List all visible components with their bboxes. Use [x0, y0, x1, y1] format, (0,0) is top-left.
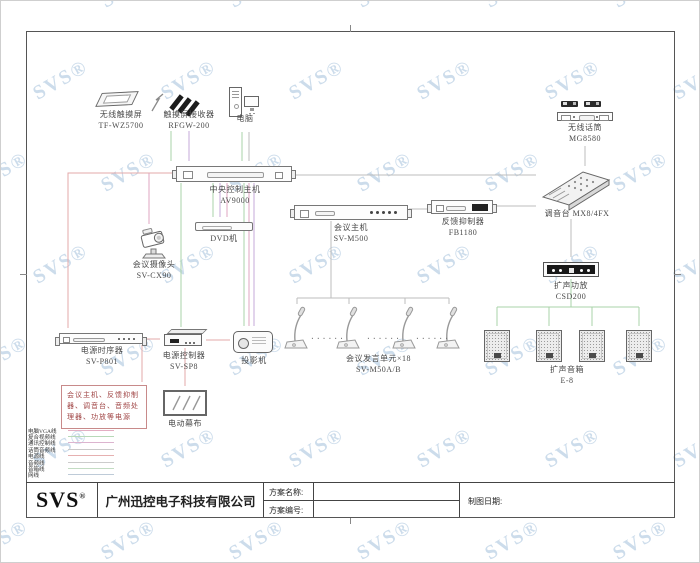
- panel-detail: [300, 210, 309, 218]
- conference-host-label: 会议主机 SV-M500: [315, 223, 387, 245]
- svs-logo: SVS®: [36, 487, 86, 513]
- conference-unit-icon: [436, 305, 462, 351]
- speaker-icon: [626, 330, 652, 362]
- dvd-player-icon: [195, 222, 253, 231]
- ellipsis-dots: ......: [310, 332, 345, 341]
- ellipsis-dots: ......: [366, 332, 401, 341]
- legend-line-swatch: [68, 455, 114, 456]
- projector-icon: [233, 331, 273, 353]
- central-controller-icon: [176, 166, 292, 182]
- divider: [459, 483, 460, 517]
- central-controller-label: 中央控制主机 AV9000: [199, 185, 271, 207]
- computer-monitor-icon: [244, 96, 259, 107]
- watermark-text: SVS®: [97, 0, 160, 13]
- watermark-text: SVS®: [0, 516, 32, 563]
- computer-tower-icon: [229, 87, 242, 117]
- handheld-mic-icon: [561, 101, 578, 107]
- knobs: [185, 342, 187, 344]
- legend-line-swatch: [68, 449, 114, 450]
- speaker-icon: [484, 330, 510, 362]
- panel-detail: [596, 116, 598, 118]
- registered-mark: ®: [79, 492, 86, 501]
- watermark-text: SVS®: [97, 516, 160, 563]
- display: [170, 339, 179, 343]
- knobs: [580, 269, 583, 272]
- panel-detail: [275, 172, 283, 179]
- top-center-tick: [350, 25, 351, 32]
- legend-line-swatch: [68, 430, 114, 431]
- motor-screen-icon: [163, 390, 207, 416]
- panel-detail: [73, 338, 105, 342]
- watermark-text: SVS®: [481, 516, 544, 563]
- legend-item: 网线: [28, 472, 114, 478]
- display: [569, 268, 574, 273]
- screen-lines: [165, 392, 205, 414]
- speaker-icon: [579, 330, 605, 362]
- touchscreen-label: 无线触摸屏 TF-WZ5700: [91, 110, 151, 132]
- projector-label: 投影机: [231, 356, 277, 367]
- watermark-text: SVS®: [481, 0, 544, 13]
- panel-detail: [446, 206, 466, 211]
- mixer-icon: [541, 169, 611, 211]
- conference-units-label: 会议发言单元×18 SV-M50A/B: [331, 354, 426, 376]
- watermark-text: SVS®: [225, 516, 288, 563]
- power-controller-label: 电源控制器 SV-SP8: [149, 351, 219, 373]
- amp-face: [547, 265, 595, 274]
- amplifier-icon: [543, 262, 599, 277]
- legend-line-swatch: [68, 462, 114, 463]
- cable-legend: 电脑VGA线复合视频线通讯控制线话筒音频线电源线音频线音箱线网线: [28, 427, 114, 478]
- panel-detail: [599, 115, 609, 121]
- feedback-suppressor-label: 反馈抑制器 FB1180: [429, 217, 497, 239]
- knobs: [552, 269, 555, 272]
- watermark-text: SVS®: [225, 0, 288, 13]
- panel-detail: [315, 211, 335, 216]
- display: [472, 204, 488, 211]
- panel-detail: [561, 115, 571, 121]
- legend-line-swatch: [68, 442, 114, 443]
- power-sequencer-icon: [59, 333, 143, 344]
- date-label: 制图日期:: [468, 496, 502, 507]
- legend-line-swatch: [68, 474, 114, 475]
- ellipsis-dots: ......: [415, 332, 450, 341]
- conference-unit-icon: [392, 305, 418, 351]
- speaker-icon: [536, 330, 562, 362]
- watermark-text: SVS®: [0, 0, 32, 13]
- computer-label: 电脑: [224, 114, 266, 125]
- company-name: 广州迅控电子科技有限公司: [98, 483, 263, 517]
- bottom-center-tick: [350, 517, 351, 524]
- conference-host-icon: [294, 205, 408, 220]
- legend-line-swatch: [68, 468, 114, 469]
- schematic-page: SVS®SVS®SVS®SVS®SVS®SVS®SVS®SVS®SVS®SVS®…: [0, 0, 700, 563]
- watermark-text: SVS®: [353, 0, 416, 13]
- camera-icon: [137, 225, 171, 259]
- speakers-label: 扩声音箱 E-8: [519, 365, 615, 387]
- legend-line-swatch: [68, 436, 114, 437]
- amplifier-label: 扩声功放 CSD200: [541, 281, 601, 303]
- right-center-tick: [674, 274, 681, 275]
- panel-detail: [207, 172, 264, 178]
- knobs: [370, 211, 373, 214]
- panel-detail: [579, 115, 595, 121]
- title-block: SVS® 广州迅控电子科技有限公司 方案名称: 方案编号: 制图日期:: [26, 482, 675, 518]
- conference-unit-icon: [284, 305, 310, 351]
- wireless-mic-receiver-icon: [557, 112, 613, 121]
- divider: [263, 500, 459, 501]
- conference-unit-icon: [336, 305, 362, 351]
- knobs: [118, 338, 120, 340]
- panel-detail: [436, 205, 444, 212]
- scheme-name-label: 方案名称:: [269, 487, 303, 498]
- power-sequencer-label: 电源时序器 SV-P801: [63, 346, 141, 368]
- dvd-label: DVD机: [198, 234, 250, 245]
- watermark-text: SVS®: [353, 516, 416, 563]
- wireless-mic-label: 无线话筒 MG8580: [555, 123, 615, 145]
- panel-detail: [573, 116, 575, 118]
- left-center-tick: [20, 274, 27, 275]
- watermark-text: SVS®: [609, 516, 672, 563]
- wireless-touchscreen-icon: [95, 91, 139, 107]
- ts-receiver-label: 触摸屏接收器 RFGW-200: [158, 110, 220, 132]
- power-note-box: 会议主机、反馈抑制器、调音台、音频处理器、功放等电源: [61, 385, 147, 429]
- panel-detail: [63, 337, 70, 343]
- watermark-text: SVS®: [609, 0, 672, 13]
- legend-label: 网线: [28, 471, 63, 479]
- scheme-no-label: 方案编号:: [269, 505, 303, 516]
- handheld-mic-icon: [584, 101, 601, 107]
- panel-detail: [183, 171, 193, 179]
- mixer-label: 调音台 MX8/4FX: [535, 209, 619, 220]
- camera-label: 会议摄像头 SV-CX90: [127, 260, 181, 282]
- motor-screen-label: 电动幕布: [159, 419, 211, 430]
- feedback-suppressor-icon: [431, 200, 493, 214]
- power-controller-icon: [164, 334, 202, 346]
